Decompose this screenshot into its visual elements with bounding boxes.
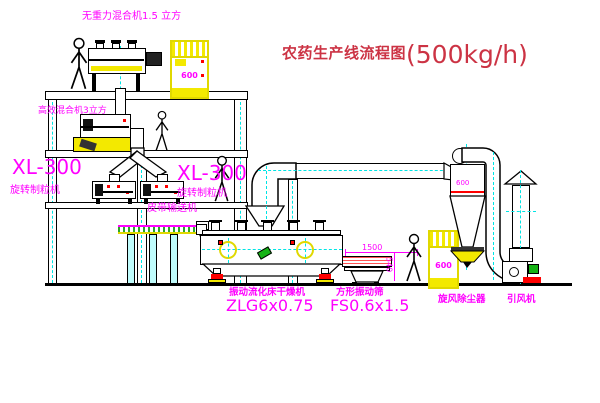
person-figure xyxy=(66,38,92,92)
label-fan: 引风机 xyxy=(507,295,536,305)
granulator-leg xyxy=(96,199,100,204)
dryer-foot-base xyxy=(208,279,226,283)
indicator-dot xyxy=(201,60,204,63)
bucket-elevator-top: 600 xyxy=(170,40,209,99)
top-mixer-motor xyxy=(146,52,162,66)
label-granulator-right-model: XL-300 xyxy=(177,163,247,184)
top-mixer-port xyxy=(112,43,120,49)
conveyor-leg xyxy=(149,234,157,286)
label-screen-model: FS0.6x1.5 xyxy=(330,298,409,315)
elbow-centerline xyxy=(266,166,267,224)
screen-length-dim: 1500 xyxy=(362,244,382,252)
fan-base xyxy=(523,277,541,283)
label-cyclone: 旋风除尘器 xyxy=(438,295,486,305)
label-belt-conveyor: 皮带输送机 xyxy=(147,204,197,215)
mid-column-centerline xyxy=(141,160,142,283)
mid-mixer-motor xyxy=(79,139,97,152)
duct-centerline xyxy=(258,170,458,171)
floor-slab-top xyxy=(45,91,248,100)
fan-motor xyxy=(528,264,539,274)
label-granulator-right-name: 旋转制粒机 xyxy=(177,189,227,200)
elevator-base xyxy=(172,88,207,97)
screen-foot xyxy=(374,282,379,285)
mid-mixer-discharge xyxy=(130,128,144,150)
mid-mixer-body xyxy=(80,114,131,138)
top-mixer-body xyxy=(88,48,146,74)
top-mixer-leg xyxy=(92,74,96,92)
elevator-hatch xyxy=(172,42,207,58)
elevator-block xyxy=(175,59,186,66)
label-dryer-model: ZLG6x0.75 xyxy=(226,298,314,315)
person-figure xyxy=(150,111,174,153)
pipe-centerline xyxy=(493,152,494,280)
conveyor-leg xyxy=(170,234,178,286)
process-flow-diagram: 600 xyxy=(0,0,600,403)
dryer-nozzle xyxy=(289,222,298,231)
person-figure xyxy=(402,234,426,284)
dryer-foot-base xyxy=(316,279,334,283)
exhaust-duct-horizontal xyxy=(292,163,445,179)
screen-foot xyxy=(352,282,357,285)
elevator-base xyxy=(430,278,457,287)
dryer-nozzle xyxy=(315,222,324,231)
granulator-block xyxy=(143,184,151,196)
mid-mixer-block xyxy=(83,119,93,131)
dryer-nozzle xyxy=(237,222,246,231)
top-mixer-shaft xyxy=(89,59,144,61)
dryer-fitting xyxy=(290,240,295,245)
dryer-nozzle xyxy=(211,222,220,231)
top-mixer-leg xyxy=(136,74,140,92)
stack-cap xyxy=(505,171,537,186)
indicator-dot xyxy=(107,185,110,188)
circle-centerline xyxy=(228,238,229,263)
label-top-mixer: 无重力混合机1.5 立方 xyxy=(82,12,181,23)
conveyor-leg xyxy=(127,234,135,286)
label-mid-mixer: 高效混合机3立方 xyxy=(38,107,107,116)
granulator-line xyxy=(103,191,133,193)
indicator-dot xyxy=(155,185,158,188)
granulator-block xyxy=(95,184,103,196)
indicator-dot xyxy=(165,185,168,188)
top-mixer-port xyxy=(128,43,136,49)
granulator-left xyxy=(92,181,136,199)
dryer-nozzle xyxy=(263,222,272,231)
stack-cross-centerline xyxy=(506,211,536,212)
dryer-fitting xyxy=(218,240,223,245)
title-text: 农药生产线流程图 xyxy=(282,42,406,63)
top-mixer-port xyxy=(96,43,104,49)
screen-dim-tick xyxy=(345,249,346,256)
stack-body xyxy=(512,185,530,248)
indicator-dot xyxy=(117,185,120,188)
screen-height-dim: 540 xyxy=(384,257,392,272)
fan-impeller-circle xyxy=(509,267,519,277)
top-mixer-yellow-strip xyxy=(91,66,142,71)
screen-vdim-line xyxy=(394,253,395,281)
indicator-dot xyxy=(123,119,126,122)
indicator-dot xyxy=(201,74,204,77)
label-granulator-left-model: XL-300 xyxy=(12,157,82,178)
stack-flare xyxy=(509,248,533,262)
circle-centerline xyxy=(305,238,306,263)
diagram-title: 农药生产线流程图 (500kg/h) xyxy=(282,42,528,67)
exhaust-duct-elbow xyxy=(248,160,298,210)
belt-conveyor xyxy=(118,225,204,234)
mixer-discharge-pipe xyxy=(115,88,126,116)
granulator-leg xyxy=(128,199,132,204)
title-capacity: (500kg/h) xyxy=(406,42,528,67)
label-granulator-left-name: 旋转制粒机 xyxy=(10,186,60,197)
mid-mixer-line xyxy=(81,126,129,128)
